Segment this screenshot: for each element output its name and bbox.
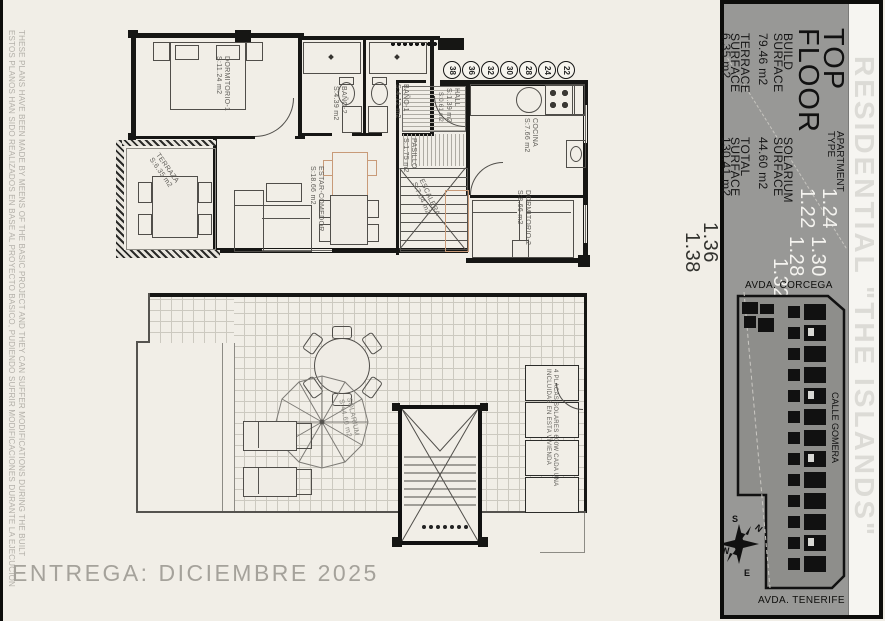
roof-edge: [136, 341, 138, 513]
site-plan-map: CALLE GOMERA S N E W: [724, 292, 855, 604]
room-name: PASILLO: [409, 138, 417, 173]
ghost-table: [332, 152, 368, 198]
top-floor-plan: 38 36 32 30 28 24 22 DORMITORIO-1 S:11.2…: [0, 0, 720, 290]
wall: [466, 258, 588, 263]
toilet-tank: [372, 77, 387, 85]
stairwell-interior: [402, 409, 478, 541]
room-area: S:18.66 m2: [308, 166, 316, 232]
lounger-head: [296, 423, 312, 449]
sofa-line: [262, 218, 310, 219]
terrace-parapet: [116, 250, 220, 258]
room-label-hall: HALL S:1.39 m2: [444, 88, 460, 123]
tv-unit: [266, 183, 302, 202]
unit-number-circle: 36: [462, 61, 480, 79]
roof-edge: [148, 293, 586, 297]
compass-w: W: [724, 546, 730, 556]
surface-label: SURFACE: [773, 137, 783, 196]
room-area: S:8.66 m2: [515, 190, 523, 245]
wall: [131, 136, 255, 139]
room-name: BAÑO-1: [401, 84, 409, 119]
wall: [396, 80, 426, 83]
room-label-pasillo: PASILLO S:1.75 m2: [401, 138, 417, 173]
surface-label: SURFACE: [773, 33, 783, 92]
roof-step-line: [540, 552, 585, 553]
sun-lounger: [243, 421, 297, 451]
ghost-cabinet: [445, 190, 469, 252]
wall: [363, 40, 366, 135]
unit-number: 22: [562, 66, 571, 75]
sun-lounger: [243, 467, 297, 497]
hall-small-area: S:0.61 m2: [436, 92, 444, 122]
terrace-parapet: [122, 140, 216, 146]
floor-title: FLOOR: [795, 28, 820, 133]
unit-number-circle: 22: [557, 61, 575, 79]
wall: [300, 36, 440, 40]
wall: [298, 133, 332, 136]
room-label-cocina: COCINA S:7.66 m2: [522, 118, 538, 153]
wall: [352, 133, 382, 136]
wall-cap: [235, 30, 251, 42]
wall: [298, 36, 302, 139]
sink-vanity: [368, 106, 388, 133]
window-line: [585, 105, 586, 143]
wall: [136, 33, 304, 38]
ghost-chair: [367, 160, 377, 176]
pillow: [175, 45, 199, 60]
door-arc: [470, 162, 503, 195]
wall-cap: [438, 38, 464, 50]
nightstand: [246, 42, 263, 61]
dining-chair: [367, 200, 379, 218]
room-name: HALL: [452, 88, 460, 123]
room-area: S:1.39 m2: [444, 88, 452, 123]
unit-number-circle: 32: [481, 61, 499, 79]
unit-number-circle: 38: [443, 61, 461, 79]
terrace-chair: [138, 182, 152, 203]
apartment-type-number: 1.24: [819, 188, 839, 229]
room-label-bano1: BAÑO-1 S:4.12 m2: [393, 84, 409, 119]
dining-table: [330, 195, 368, 245]
lower-roof-line: [222, 343, 223, 511]
apartment-type-number: 1.38: [684, 232, 700, 273]
street-label-top: AVDA. CORCEGA: [745, 280, 833, 291]
toilet: [371, 82, 388, 105]
room-area: S:7.66 m2: [522, 118, 530, 153]
solar-note-line2: INCLUIDAS EN ESTA VIVIENDA: [544, 369, 551, 486]
unit-number: 32: [486, 66, 495, 75]
kitchen-sink: [516, 87, 542, 113]
unit-number: 24: [543, 66, 552, 75]
sofa: [234, 205, 312, 252]
bed-single: [526, 200, 574, 258]
apartment-type-number: 1.36: [702, 222, 718, 263]
roof-step-line: [584, 513, 585, 553]
room-label-dormitorio2: DORMITORIO-2 S:8.66 m2: [515, 190, 531, 245]
ghost-chair: [323, 160, 333, 176]
stair-flange: [480, 403, 488, 411]
surface-value: 79.46 m2: [757, 33, 768, 85]
roof-edge: [584, 293, 587, 513]
room-area: S:1.75 m2: [401, 138, 409, 173]
wall: [131, 33, 136, 140]
apartment-type-label: TYPE: [826, 131, 834, 157]
room-name: ESTAR-COMEDOR: [316, 166, 324, 232]
unit-number: 28: [524, 66, 533, 75]
apartment-type-number: 1.22: [797, 188, 817, 229]
room-name: BAÑO-2: [339, 86, 347, 121]
room-area: S:11.24 m2: [214, 56, 222, 111]
dining-chair: [367, 224, 379, 242]
terrace-table: [152, 176, 198, 238]
lounger-head: [296, 469, 312, 495]
door-arc: [255, 98, 294, 137]
wall-cap: [128, 30, 138, 38]
room-label-estar-comedor: ESTAR-COMEDOR S:18.66 m2: [308, 166, 324, 232]
surface-value: 130.41 m2: [720, 137, 731, 196]
kitchen-cabinet: [572, 85, 585, 115]
lounger-line: [258, 422, 259, 448]
street-label-bottom: AVDA. TENERIFE: [758, 595, 845, 606]
chair: [332, 326, 352, 339]
sink-bowl: [570, 146, 582, 162]
window-line: [585, 205, 586, 243]
room-name: DORMITORIO-1: [222, 56, 230, 111]
street-label-side: CALLE GOMERA: [830, 392, 840, 463]
unit-number-circle: 30: [500, 61, 518, 79]
room-name: DORMITORIO-2: [523, 190, 531, 245]
terrace-parapet: [116, 140, 124, 258]
room-name: COCINA: [530, 118, 538, 153]
delivery-note: ENTREGA: DICIEMBRE 2025: [12, 560, 379, 587]
unit-number: 38: [448, 66, 457, 75]
lower-roof-line: [234, 343, 235, 511]
surface-value: 6.35 m2: [720, 33, 731, 78]
roof-plan: 4 PLACAS SOLARES 600W CADA UNA INCLUIDAS…: [0, 285, 720, 575]
compass-n: N: [753, 522, 764, 534]
room-area: S:4.39 m2: [331, 86, 339, 121]
terrace-chair: [198, 214, 212, 235]
roof-edge: [136, 341, 150, 343]
room-area: S:4.12 m2: [393, 84, 401, 119]
terrace-chair: [138, 214, 152, 235]
stair-flange: [478, 537, 488, 547]
unit-number-circle: 24: [538, 61, 556, 79]
apartment-type-number: 1.30: [808, 236, 828, 277]
unit-number: 36: [467, 66, 476, 75]
stair-flange: [392, 403, 400, 411]
stair-flange: [392, 537, 402, 547]
surface-value: 44.60 m2: [757, 137, 768, 189]
apartment-type-label: APARTMENT: [835, 131, 843, 192]
nightstand: [153, 42, 170, 61]
room-label-dormitorio1: DORMITORIO-1 S:11.24 m2: [214, 56, 230, 111]
unit-number-circle: 28: [519, 61, 537, 79]
roof-edge: [148, 293, 150, 343]
wall-cap: [578, 255, 590, 267]
compass-s: S: [732, 514, 738, 524]
unit-number: 30: [505, 66, 514, 75]
stove-burners: [548, 88, 570, 110]
roof-edge: [136, 511, 586, 513]
bed-line: [527, 212, 571, 213]
bed-line: [473, 212, 517, 213]
solarium-tiles: [150, 297, 234, 343]
room-label-bano2: BAÑO-2 S:4.39 m2: [331, 86, 347, 121]
compass-e: E: [744, 568, 750, 578]
toilet-tank: [339, 77, 354, 85]
plan-sheet: THESE PLANS HAVE BEEN MADE BY MEENS OF T…: [0, 0, 885, 621]
terrace-chair: [198, 182, 212, 203]
lounger-line: [258, 468, 259, 494]
